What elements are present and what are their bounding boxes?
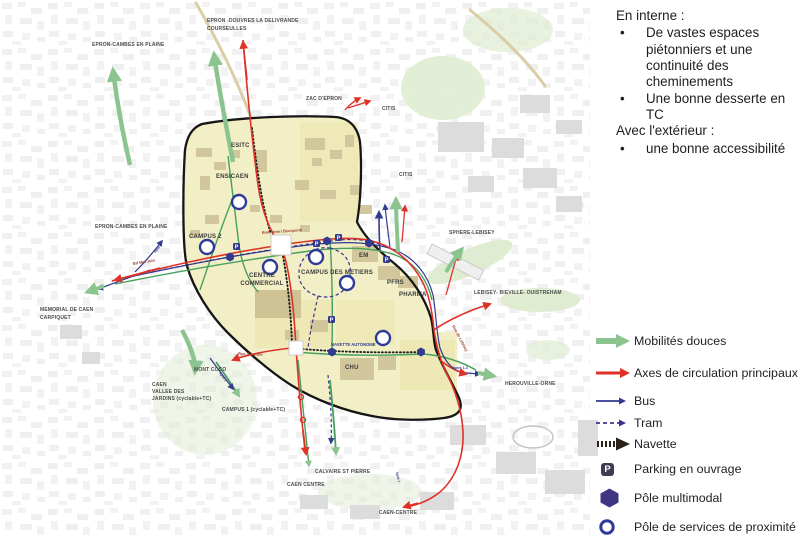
hexagon-icon — [596, 488, 634, 508]
map: P P P P P EPRON -DOUVRES LA DELIVRANDE C… — [0, 0, 600, 535]
circle-ring-icon — [596, 518, 634, 535]
map-svg: P P P P P EPRON -DOUVRES LA DELIVRANDE C… — [0, 0, 600, 535]
label-memorial-1: MEMORIAL DE CAEN — [40, 307, 94, 313]
legend-row-parking: P Parking en ouvrage — [596, 458, 741, 480]
label-campus2: CAMPUS 2 — [189, 234, 222, 240]
label-epron-cambes-ouest: EPRON-CAMBES EN PLAINE — [95, 224, 168, 230]
label-campus1: CAMPUS 1 (cyclable+TC) — [222, 407, 285, 413]
label-vallee-1: CAEN — [152, 382, 167, 388]
label-navette-autonome: NAVETTE AUTONOME — [331, 342, 376, 347]
label-pfrs: PFRS — [387, 280, 404, 286]
legend-row-pole-services: Pôle de services de proximité — [596, 516, 796, 535]
parking-icon: P — [596, 463, 634, 476]
legend: Mobilités douces Axes de circulation pri… — [596, 0, 800, 535]
mobilites-douces-arrow-icon — [596, 333, 634, 349]
label-caen-centre: CAEN CENTRE — [287, 482, 325, 488]
label-herouville: HEROUVILLE-ORNE — [505, 381, 556, 387]
label-esitc: ESITC — [231, 143, 250, 149]
label-sphere-lebisey: SPHERE-LEBISEY — [449, 230, 495, 236]
slide: P P P P P EPRON -DOUVRES LA DELIVRANDE C… — [0, 0, 800, 535]
label-lebisey: LEBISEY- BIEVILLE- OUISTREHAM — [474, 290, 562, 296]
parking-p: P — [337, 236, 341, 242]
legend-row-axes-circulation: Axes de circulation principaux — [596, 362, 798, 384]
legend-row-pole-multimodal: Pôle multimodal — [596, 487, 722, 509]
legend-row-mobilites-douces: Mobilités douces — [596, 330, 726, 352]
label-centre-commercial-1: CENTRE — [249, 273, 275, 279]
label-centre-commercial-2: COMMERCIAL — [240, 281, 283, 287]
legend-row-tram: Tram — [596, 412, 662, 434]
label-epron-douvres-2: COURSEULLES — [207, 26, 247, 32]
label-epron-cambes-nord: EPRON-CAMBES EN PLAINE — [92, 42, 165, 48]
parking-p: P — [330, 318, 334, 324]
tram-line-icon — [596, 415, 634, 431]
label-zac-epron: ZAC D'EPRON — [306, 96, 342, 102]
label-vallee-2: VALLEE DES — [152, 389, 185, 395]
arrow-citis — [396, 199, 398, 252]
legend-row-bus: Bus — [596, 390, 655, 412]
label-caen-centre-sud: CAEN-CENTRE — [379, 510, 418, 516]
label-chu: CHU — [345, 365, 359, 371]
navette-line-icon — [596, 436, 634, 452]
label-epron-douvres-1: EPRON -DOUVRES LA DELIVRANDE — [207, 18, 299, 24]
label-citis-nord: CITIS — [382, 106, 396, 112]
label-rue-authie: Rue d'Authie — [238, 351, 263, 357]
label-citis-est: CITIS — [399, 172, 413, 178]
axes-circulation-arrow-icon — [596, 365, 634, 381]
label-ensicaen: ENSICAEN — [216, 174, 249, 180]
label-campus-metiers: CAMPUS DES METIERS — [301, 270, 373, 276]
label-pharma: PHARMA — [399, 292, 427, 298]
label-em: EM — [359, 253, 368, 259]
label-memorial-2: CARPIQUET — [40, 315, 71, 321]
parking-p: P — [385, 258, 389, 264]
label-vallee-3: JARDINS (cyclable+TC) — [152, 396, 211, 402]
parking-p: P — [235, 245, 239, 251]
legend-row-navette: Navette — [596, 433, 677, 455]
label-calvaire: CALVAIRE ST PIERRE — [315, 469, 371, 475]
parking-p: P — [315, 242, 319, 248]
bus-line-icon — [596, 393, 634, 409]
label-lignes-1-4: lignes 1-4 — [452, 366, 468, 370]
